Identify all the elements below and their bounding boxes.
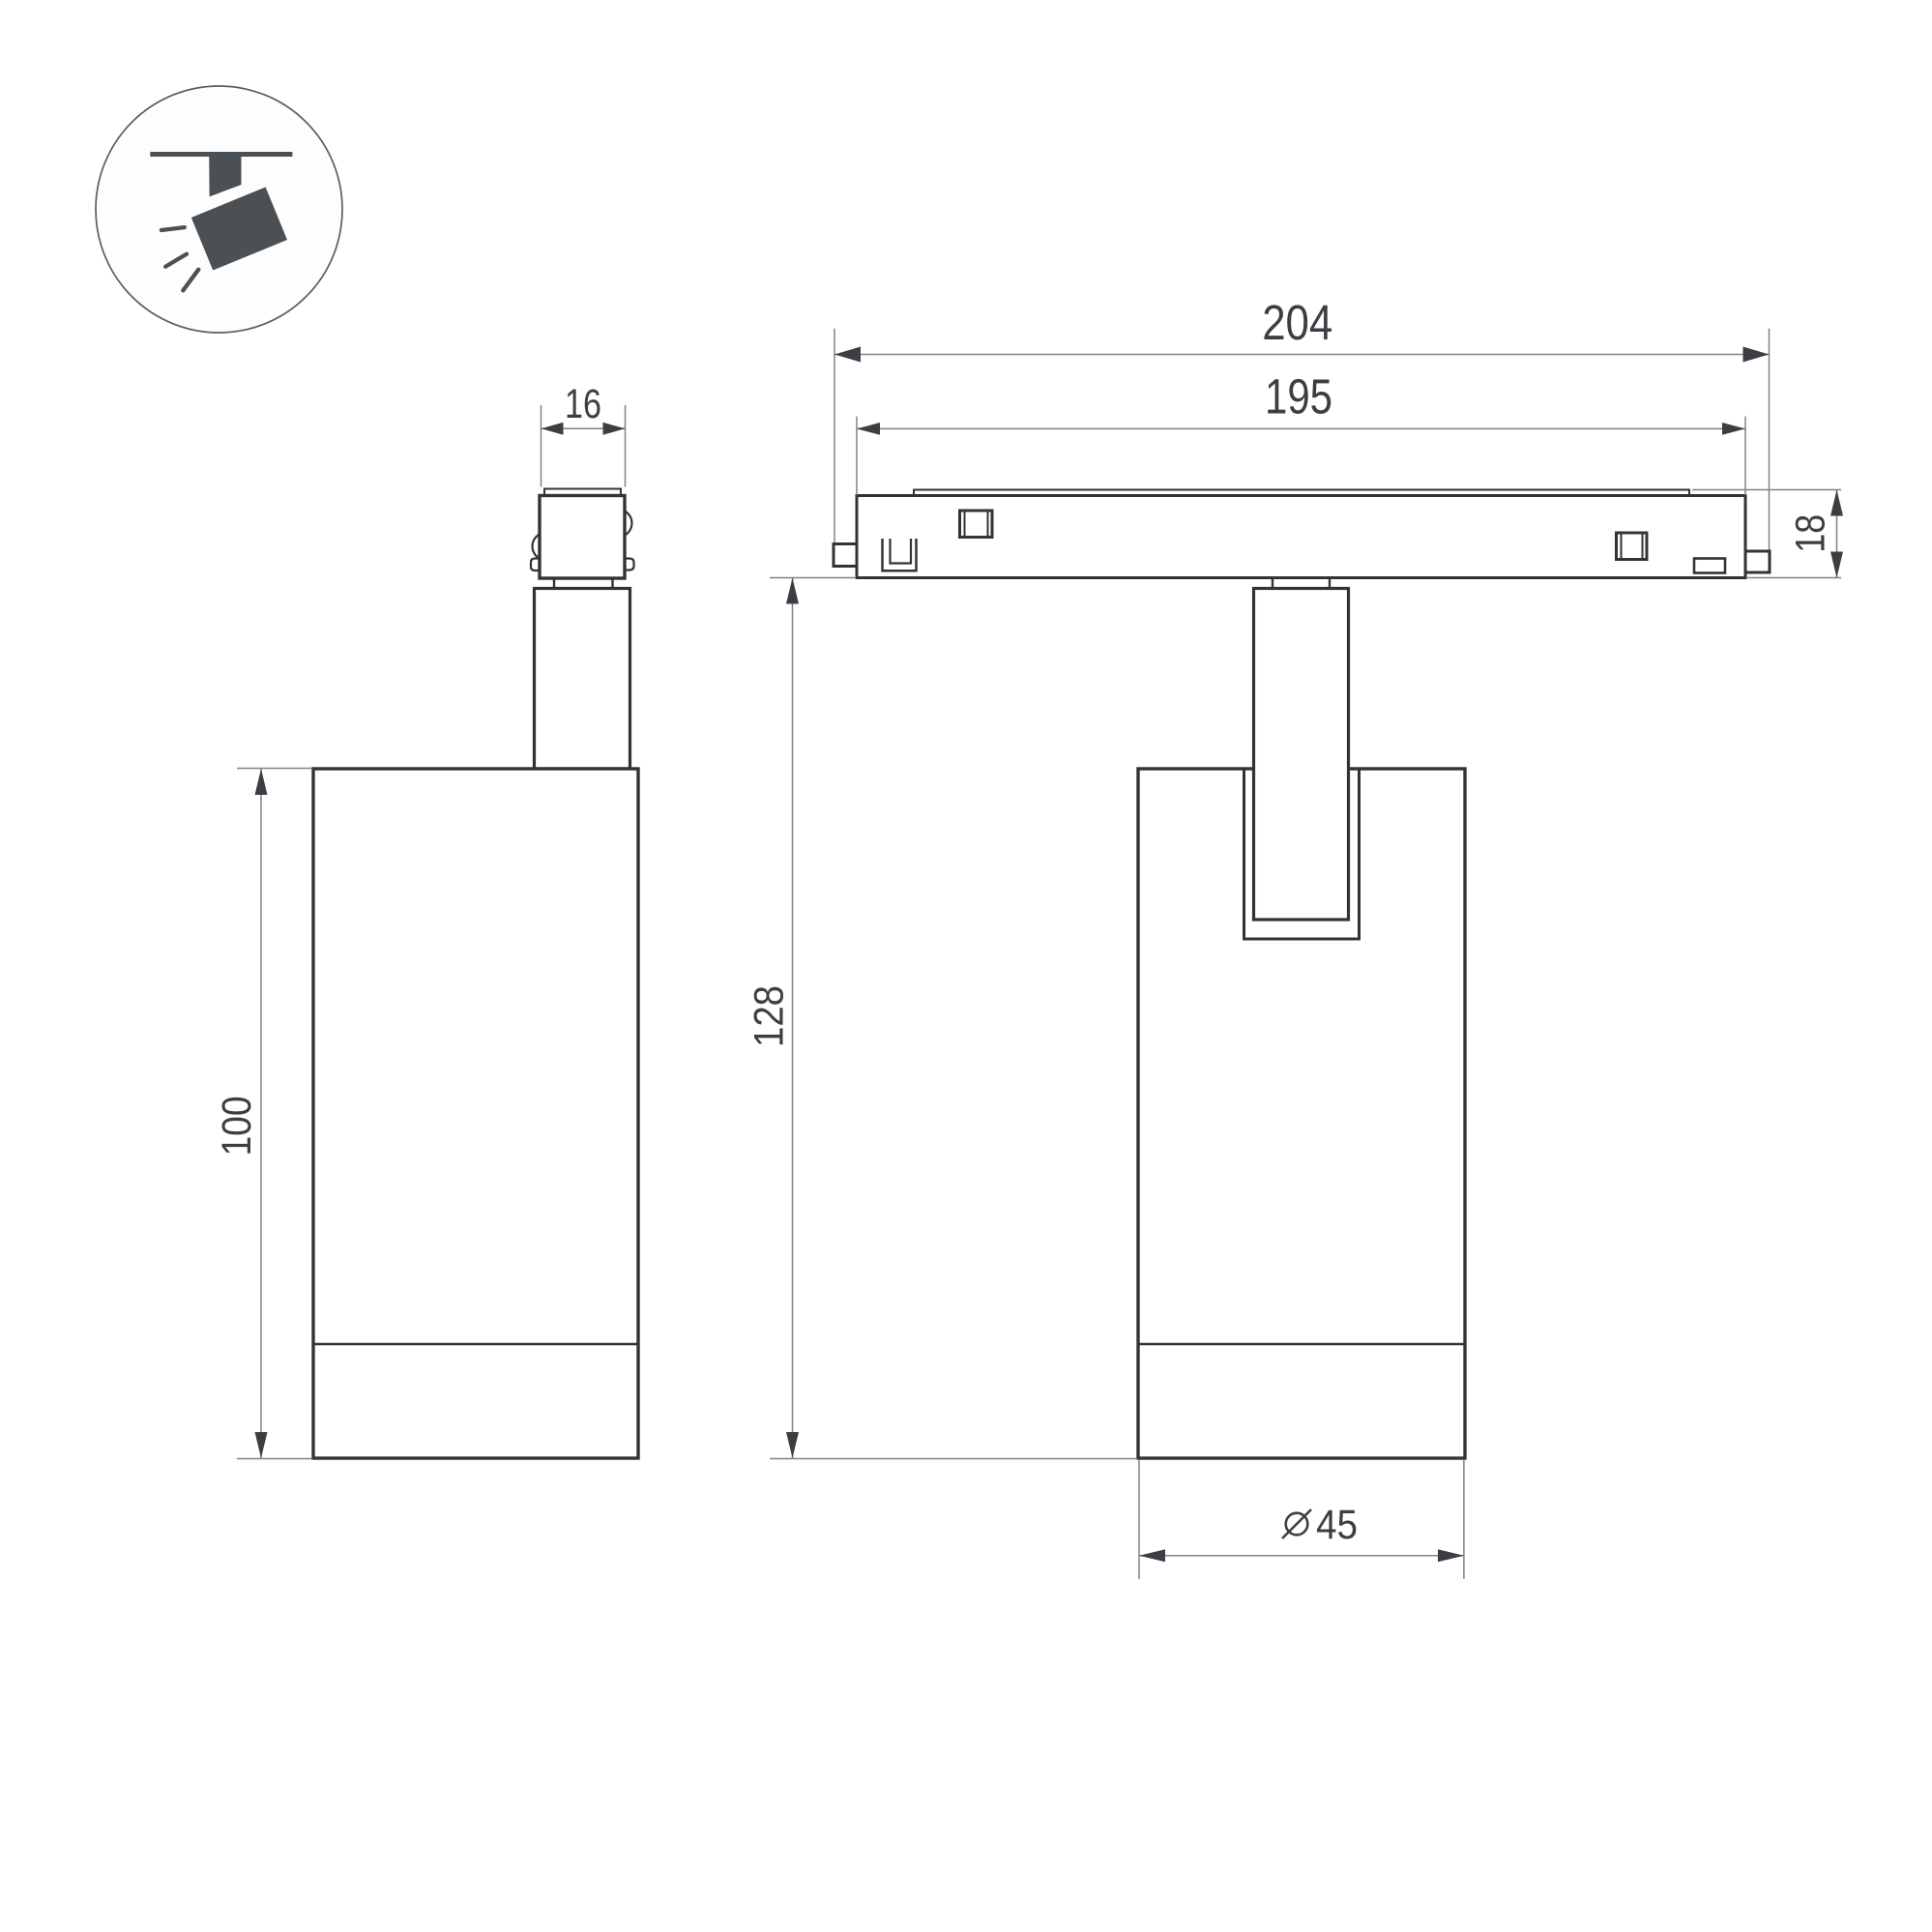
svg-text:195: 195 xyxy=(1265,369,1332,424)
svg-text:18: 18 xyxy=(1788,514,1834,553)
svg-text:128: 128 xyxy=(746,985,792,1047)
svg-text:100: 100 xyxy=(214,1097,260,1156)
svg-text:16: 16 xyxy=(565,381,601,427)
svg-text:45: 45 xyxy=(1316,1502,1358,1548)
svg-text:204: 204 xyxy=(1262,295,1332,350)
